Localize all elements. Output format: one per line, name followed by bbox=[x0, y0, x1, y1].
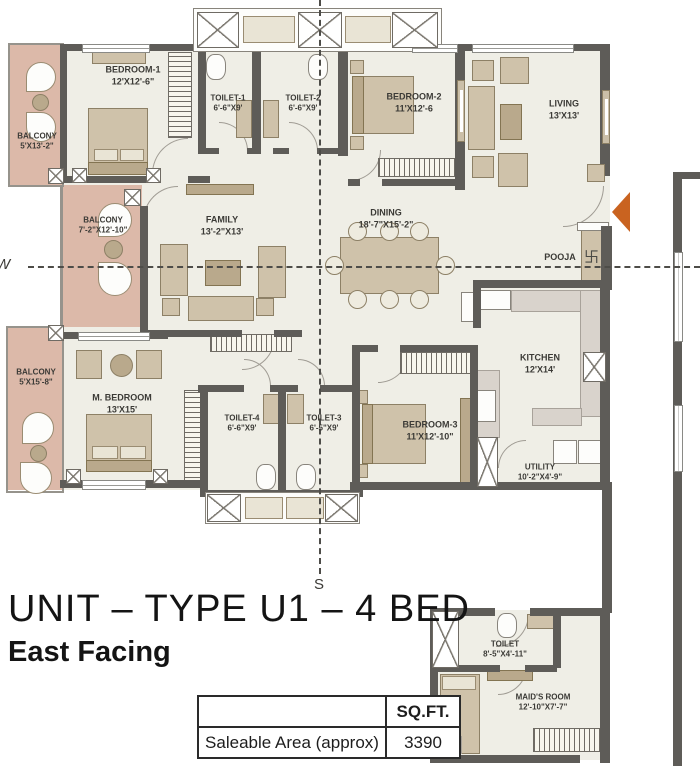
room-label-family: FAMILY 13'-2"X13' bbox=[201, 214, 244, 237]
room-label-bedroom3: BEDROOM-3 11'X12'-10" bbox=[402, 419, 457, 442]
room-label-utility: UTILITY 10'-2"X4'-9" bbox=[518, 463, 562, 484]
shaft-x bbox=[207, 494, 241, 522]
column-x bbox=[72, 168, 87, 183]
room-name: POOJA bbox=[544, 252, 576, 264]
room-dims: 6'-6"X9' bbox=[286, 104, 321, 114]
wc bbox=[497, 613, 517, 638]
room-dims: 18'-7"X15'-2" bbox=[359, 219, 414, 231]
pillow bbox=[120, 149, 144, 161]
wall bbox=[200, 385, 208, 497]
pillow bbox=[94, 149, 118, 161]
room-name: FAMILY bbox=[201, 214, 244, 226]
column-x bbox=[153, 469, 168, 484]
room-name: BALCONY bbox=[17, 132, 57, 142]
wall bbox=[400, 345, 478, 352]
entrance-arrow bbox=[612, 192, 630, 232]
shaft-x bbox=[392, 12, 438, 48]
area-table-header-sqft: SQ.FT. bbox=[386, 696, 460, 727]
wc bbox=[308, 54, 328, 80]
dining-chair bbox=[380, 290, 399, 309]
vanity bbox=[263, 100, 279, 138]
room-label-bedroom1: BEDROOM-1 12'X12'-6" bbox=[105, 64, 160, 87]
room-name: M. BEDROOM bbox=[92, 392, 152, 404]
dining-chair bbox=[410, 290, 429, 309]
wall bbox=[60, 44, 67, 183]
window-panel bbox=[602, 90, 610, 144]
floor-plan-sheet: 卐 S W BEDROOM-1 12'X12'-6" TOILET-1 6'-6… bbox=[0, 0, 700, 773]
room-name: LIVING bbox=[549, 98, 579, 110]
wall bbox=[140, 206, 148, 332]
area-table-empty-cell bbox=[198, 696, 386, 727]
window-panel bbox=[457, 80, 465, 142]
room-label-kitchen: KITCHEN 12'X14' bbox=[520, 352, 560, 375]
room-dims: 11'X12'-6 bbox=[386, 103, 441, 115]
unit-title: UNIT – TYPE U1 – 4 BED bbox=[8, 588, 470, 631]
room-label-living: LIVING 13'X13' bbox=[549, 98, 579, 121]
room-dims: 13'X13' bbox=[549, 110, 579, 122]
side-table bbox=[256, 298, 274, 316]
wardrobe bbox=[533, 728, 601, 752]
side-table bbox=[162, 298, 180, 316]
duct-panel bbox=[243, 16, 295, 43]
bed-headboard bbox=[352, 76, 364, 134]
armchair bbox=[136, 350, 162, 379]
room-name: TOILET-3 bbox=[307, 414, 342, 424]
shaft-x bbox=[325, 494, 358, 522]
pillow bbox=[92, 446, 118, 459]
room-dims: 5'X13'-2" bbox=[17, 142, 57, 152]
kitchen-counter bbox=[532, 408, 582, 426]
window bbox=[472, 44, 574, 53]
room-label-maid-toilet: TOILET 8'-5"X4'-11" bbox=[483, 640, 527, 661]
facing-subtitle: East Facing bbox=[8, 636, 171, 669]
room-dims: 8'-5"X4'-11" bbox=[483, 650, 527, 660]
room-label-toilet3: TOILET-3 6'-5"X9' bbox=[307, 414, 342, 435]
room-dims: 12'-10"X7'-7" bbox=[516, 703, 571, 713]
sofa bbox=[160, 244, 188, 296]
wall bbox=[278, 385, 286, 495]
balcony-chair bbox=[20, 462, 52, 494]
dresser bbox=[92, 52, 146, 64]
room-name: BEDROOM-1 bbox=[105, 64, 160, 76]
bed-headboard bbox=[362, 404, 373, 464]
entry-pillar bbox=[587, 164, 605, 182]
area-table: SQ.FT. Saleable Area (approx) 3390 bbox=[197, 695, 461, 759]
nightstand bbox=[350, 136, 364, 150]
balcony-table bbox=[30, 445, 47, 462]
room-label-pooja: POOJA bbox=[544, 252, 576, 264]
wardrobe bbox=[400, 352, 474, 374]
room-dims: 6'-5"X9' bbox=[307, 424, 342, 434]
table-row: SQ.FT. bbox=[198, 696, 460, 727]
shaft-x bbox=[197, 12, 239, 48]
window bbox=[78, 332, 150, 341]
duct-panel bbox=[345, 16, 391, 43]
room-name: TOILET-4 bbox=[225, 414, 260, 424]
swastika-symbol: 卐 bbox=[584, 250, 599, 265]
room-name: TOILET-1 bbox=[211, 94, 246, 104]
area-table-value: 3390 bbox=[386, 727, 460, 758]
vanity bbox=[287, 394, 304, 424]
pillow bbox=[442, 676, 476, 690]
pouf bbox=[110, 354, 133, 377]
compass-axis-horizontal bbox=[28, 266, 700, 268]
balcony2-floor bbox=[62, 185, 142, 327]
stove bbox=[583, 352, 606, 382]
washer bbox=[553, 440, 577, 464]
balcony-chair bbox=[22, 412, 54, 444]
wc bbox=[296, 464, 316, 490]
room-name: MAID'S ROOM bbox=[516, 693, 571, 703]
sink bbox=[477, 390, 496, 422]
column-x bbox=[124, 189, 141, 206]
room-label-toilet1: TOILET-1 6'-6"X9' bbox=[211, 94, 246, 115]
room-label-mbedroom: M. BEDROOM 13'X15' bbox=[92, 392, 152, 415]
room-dims: 11'X12'-10" bbox=[402, 431, 457, 443]
area-table-row-label: Saleable Area (approx) bbox=[198, 727, 386, 758]
kitchen-window bbox=[477, 290, 511, 310]
wall bbox=[530, 608, 610, 616]
wc bbox=[256, 464, 276, 490]
vanity bbox=[527, 614, 555, 629]
wall bbox=[382, 179, 460, 186]
window bbox=[82, 44, 150, 53]
room-label-dining: DINING 18'-7"X15'-2" bbox=[359, 207, 414, 230]
room-name: UTILITY bbox=[518, 463, 562, 473]
balcony-table bbox=[32, 94, 49, 111]
room-label-toilet4: TOILET-4 6'-6"X9' bbox=[225, 414, 260, 435]
room-dims: 5'X15'-8" bbox=[16, 378, 56, 388]
sofa bbox=[468, 86, 495, 150]
room-name: TOILET-2 bbox=[286, 94, 321, 104]
column-x bbox=[48, 168, 64, 184]
balcony-chair bbox=[26, 62, 56, 92]
wall bbox=[348, 179, 360, 186]
sofa bbox=[188, 296, 254, 321]
table-row: Saleable Area (approx) 3390 bbox=[198, 727, 460, 758]
compass-axis-vertical bbox=[319, 0, 321, 574]
room-label-bedroom2: BEDROOM-2 11'X12'-6 bbox=[386, 91, 441, 114]
room-name: BEDROOM-2 bbox=[386, 91, 441, 103]
room-name: BEDROOM-3 bbox=[402, 419, 457, 431]
coffee-table bbox=[205, 260, 241, 286]
window bbox=[674, 405, 683, 472]
room-dims: 12'X14' bbox=[520, 364, 560, 376]
wardrobe bbox=[378, 158, 458, 177]
wall bbox=[273, 148, 289, 154]
room-dims: 13'X15' bbox=[92, 404, 152, 416]
armchair bbox=[498, 153, 528, 187]
room-label-balcony3: BALCONY 5'X15'-8" bbox=[16, 368, 56, 389]
coffee-table bbox=[500, 104, 522, 140]
wall bbox=[198, 44, 206, 154]
balcony-table bbox=[104, 240, 123, 259]
armchair bbox=[500, 57, 529, 84]
wall bbox=[473, 280, 610, 288]
wardrobe bbox=[168, 52, 192, 138]
wall bbox=[188, 176, 210, 183]
room-label-balcony1: BALCONY 5'X13'-2" bbox=[17, 132, 57, 153]
nightstand bbox=[350, 60, 364, 74]
room-name: BALCONY bbox=[79, 216, 128, 226]
wall bbox=[473, 280, 481, 328]
column-x bbox=[146, 168, 161, 183]
room-dims: 6'-6"X9' bbox=[211, 104, 246, 114]
bed-headboard bbox=[86, 460, 152, 472]
wall bbox=[352, 345, 360, 497]
wall bbox=[602, 488, 612, 613]
armchair bbox=[472, 156, 494, 178]
column-x bbox=[66, 469, 81, 484]
room-dims: 7'-2"X12'-10" bbox=[79, 226, 128, 236]
room-label-maid-room: MAID'S ROOM 12'-10"X7'-7" bbox=[516, 693, 571, 714]
wall bbox=[274, 330, 302, 337]
pillow bbox=[120, 446, 146, 459]
armchair bbox=[76, 350, 102, 379]
wall bbox=[600, 280, 610, 490]
room-name: KITCHEN bbox=[520, 352, 560, 364]
room-dims: 13'-2"X13' bbox=[201, 226, 244, 238]
room-label-balcony2: BALCONY 7'-2"X12'-10" bbox=[79, 216, 128, 237]
balcony2-rail bbox=[60, 185, 63, 330]
dining-chair bbox=[348, 290, 367, 309]
wall bbox=[252, 44, 261, 154]
room-name: TOILET bbox=[483, 640, 527, 650]
wall bbox=[553, 608, 561, 668]
room-dims: 12'X12'-6" bbox=[105, 76, 160, 88]
wall bbox=[600, 608, 610, 763]
tv-unit bbox=[186, 184, 254, 195]
shaft-x bbox=[477, 437, 498, 487]
room-label-toilet2: TOILET-2 6'-6"X9' bbox=[286, 94, 321, 115]
duct-panel bbox=[245, 497, 283, 519]
column-x bbox=[48, 325, 64, 341]
compass-west-label: W bbox=[0, 256, 10, 273]
room-dims: 6'-6"X9' bbox=[225, 424, 260, 434]
sofa bbox=[258, 246, 286, 298]
bed-headboard bbox=[88, 162, 148, 175]
wc bbox=[206, 54, 226, 80]
room-name: DINING bbox=[359, 207, 414, 219]
wall bbox=[338, 44, 348, 156]
room-dims: 10'-2"X4'-9" bbox=[518, 473, 562, 483]
room-name: BALCONY bbox=[16, 368, 56, 378]
washer bbox=[578, 440, 602, 464]
window bbox=[82, 480, 146, 490]
armchair bbox=[472, 60, 494, 81]
